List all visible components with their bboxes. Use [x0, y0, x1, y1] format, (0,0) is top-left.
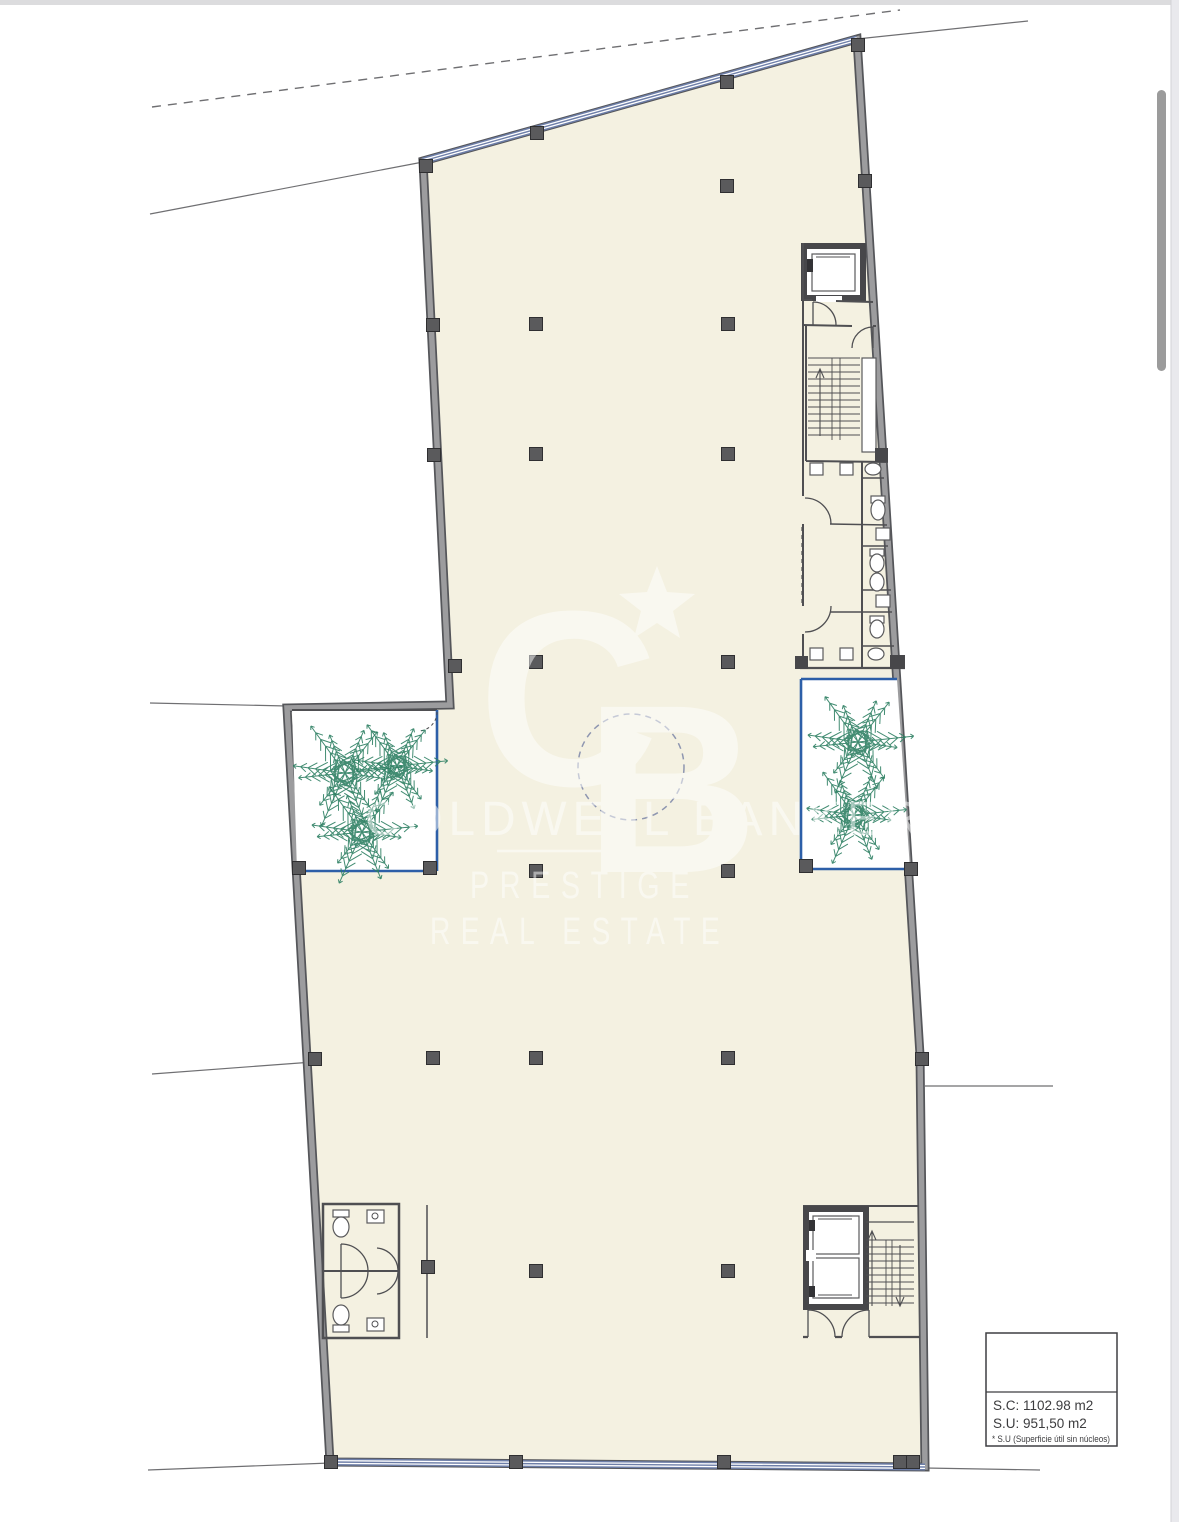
legend-su: S.U: 951,50 m2 [993, 1416, 1087, 1431]
toilet [871, 500, 885, 520]
column [718, 1456, 731, 1469]
site-line-bottom-left [148, 1463, 330, 1470]
urinal [810, 648, 823, 660]
column [449, 660, 462, 673]
wall-pier [795, 656, 808, 669]
column [530, 448, 543, 461]
column [721, 76, 734, 89]
column [530, 1052, 543, 1065]
toilet [333, 1305, 349, 1325]
site-line-mid-left [152, 1062, 313, 1074]
column [530, 318, 543, 331]
toilet [870, 620, 884, 638]
toilet [870, 554, 884, 572]
elevator-counterweight [809, 1220, 815, 1231]
watermark-brand: COLDWELL BANKER [365, 793, 925, 846]
column [510, 1456, 523, 1469]
toilet-tank [333, 1210, 349, 1217]
column [859, 175, 872, 188]
scrollbar-thumb[interactable] [1157, 90, 1166, 371]
sink [865, 463, 881, 475]
page: { "page": { "background": "#ffffff", "to… [0, 0, 1179, 1522]
toilet [333, 1217, 349, 1237]
elevator-car [812, 254, 855, 291]
elevator-car [813, 1216, 859, 1254]
elevator-counterweight [807, 259, 813, 272]
column [852, 39, 865, 52]
watermark-line3: REAL ESTATE [430, 911, 730, 953]
sink [367, 1210, 384, 1223]
top-edge-strip [0, 0, 1179, 5]
wall-pier [875, 448, 888, 462]
column [293, 862, 306, 875]
column [722, 1052, 735, 1065]
column [800, 860, 813, 873]
column [722, 318, 735, 331]
column [905, 863, 918, 876]
legend-note: * S.U (Superficie útil sin núcleos) [992, 1434, 1110, 1444]
column [422, 1261, 435, 1274]
column [428, 449, 441, 462]
toilet [870, 573, 884, 591]
column [907, 1456, 920, 1469]
elevator-counterweight [809, 1286, 815, 1297]
elevator-top [801, 243, 866, 302]
column [722, 448, 735, 461]
column [916, 1053, 929, 1066]
glazing-bottom [330, 1462, 925, 1467]
column [325, 1456, 338, 1469]
site-line-mid-left-notch [150, 703, 287, 706]
column [420, 160, 433, 173]
column [722, 1265, 735, 1278]
urinal [810, 463, 823, 475]
watermark-line2: PRESTIGE [470, 865, 700, 907]
site-line-top-right [857, 21, 1028, 39]
column [894, 1456, 907, 1469]
legend-box: S.C: 1102.98 m2 S.U: 951,50 m2 * S.U (Su… [986, 1333, 1117, 1446]
column [309, 1053, 322, 1066]
shaft-divider [806, 1250, 816, 1261]
sink [868, 648, 884, 660]
page-right-edge [1171, 0, 1179, 1522]
column [424, 862, 437, 875]
urinal [840, 648, 853, 660]
column [427, 1052, 440, 1065]
sink [876, 528, 890, 540]
column [721, 180, 734, 193]
floor-plan-svg: C B COLDWELL BANKER PRESTIGE REAL ESTATE… [0, 0, 1179, 1522]
column [427, 319, 440, 332]
sink [876, 595, 890, 607]
wall-pier [890, 655, 905, 669]
site-line-bottom-right [925, 1468, 1040, 1470]
elevator-car [813, 1258, 859, 1298]
stair-shaft [862, 358, 876, 452]
column [531, 127, 544, 140]
urinal [840, 463, 853, 475]
legend-sc: S.C: 1102.98 m2 [993, 1398, 1093, 1413]
toilet-tank [333, 1325, 349, 1332]
column [530, 1265, 543, 1278]
sink [367, 1318, 384, 1331]
site-line-top-left [150, 162, 423, 214]
